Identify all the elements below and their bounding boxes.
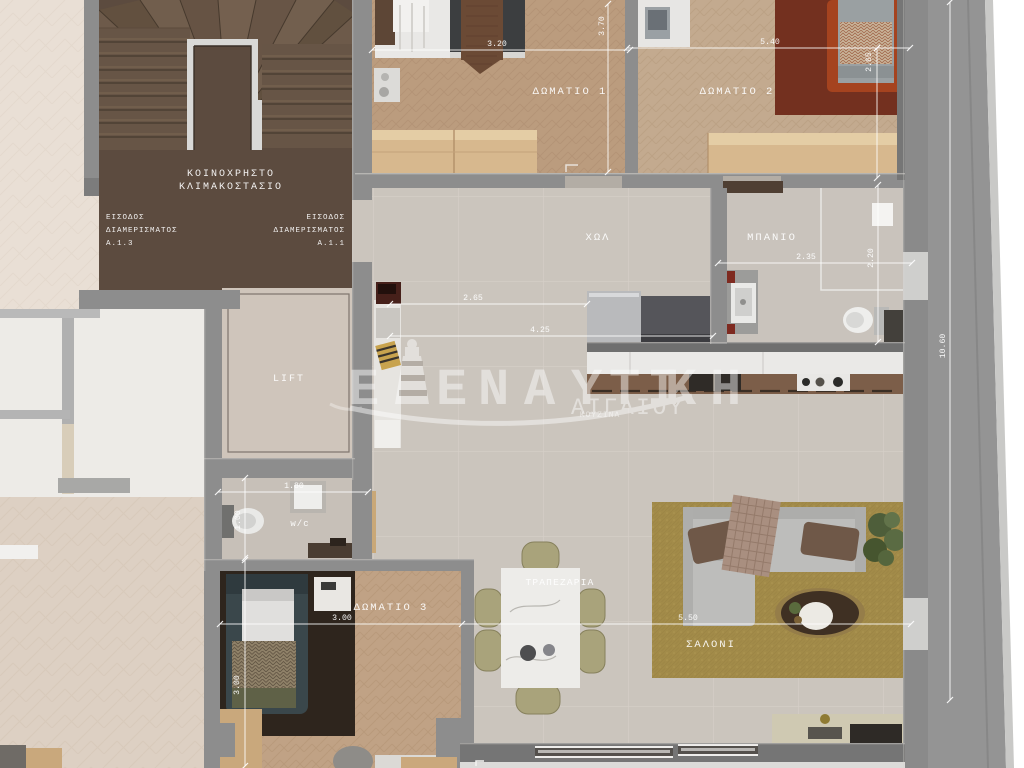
svg-text:1.00: 1.00 xyxy=(234,510,243,530)
svg-text:MΠANIO: MΠANIO xyxy=(747,232,797,244)
svg-text:A.1.1: A.1.1 xyxy=(317,240,345,248)
svg-text:A.1.3: A.1.3 xyxy=(106,240,134,248)
svg-text:w/c: w/c xyxy=(290,519,309,529)
svg-text:EIΣOΔOΣ: EIΣOΔOΣ xyxy=(106,214,145,222)
svg-text:KOINOXPHΣTO: KOINOXPHΣTO xyxy=(187,169,275,180)
svg-text:2.35: 2.35 xyxy=(796,253,816,262)
svg-text:ΔΩMATIO 3: ΔΩMATIO 3 xyxy=(354,602,429,614)
svg-text:10.60: 10.60 xyxy=(939,334,948,359)
svg-text:ΔΩMATIO 1: ΔΩMATIO 1 xyxy=(533,86,608,98)
svg-text:KΛIMAKOΣTAΣIO: KΛIMAKOΣTAΣIO xyxy=(179,182,283,193)
svg-text:XΩΛ: XΩΛ xyxy=(586,232,611,244)
svg-text:2.65: 2.65 xyxy=(865,52,874,72)
svg-text:ΑΙΓΑΙΟΥ: ΑΙΓΑΙΟΥ xyxy=(571,395,685,421)
svg-text:TPAΠEZAPIA: TPAΠEZAPIA xyxy=(525,577,594,588)
svg-text:4.25: 4.25 xyxy=(530,326,550,335)
svg-text:LIFT: LIFT xyxy=(273,374,305,385)
svg-text:ΔΩMATIO 2: ΔΩMATIO 2 xyxy=(700,86,775,98)
svg-text:2.20: 2.20 xyxy=(867,248,876,268)
svg-text:5.40: 5.40 xyxy=(760,38,780,47)
svg-text:1.80: 1.80 xyxy=(284,482,304,491)
svg-text:3.00: 3.00 xyxy=(332,614,352,623)
svg-text:5.50: 5.50 xyxy=(678,614,698,623)
svg-text:EIΣOΔOΣ: EIΣOΔOΣ xyxy=(306,214,345,222)
svg-text:ΣAΛONI: ΣAΛONI xyxy=(686,639,736,651)
svg-text:3.00: 3.00 xyxy=(233,675,242,695)
svg-text:2.65: 2.65 xyxy=(463,294,483,303)
svg-text:3.20: 3.20 xyxy=(487,40,507,49)
svg-text:ΔIAMEPIΣMATOΣ: ΔIAMEPIΣMATOΣ xyxy=(273,227,345,235)
svg-text:ΔIAMEPIΣMATOΣ: ΔIAMEPIΣMATOΣ xyxy=(106,227,178,235)
svg-text:3.70: 3.70 xyxy=(598,16,607,36)
